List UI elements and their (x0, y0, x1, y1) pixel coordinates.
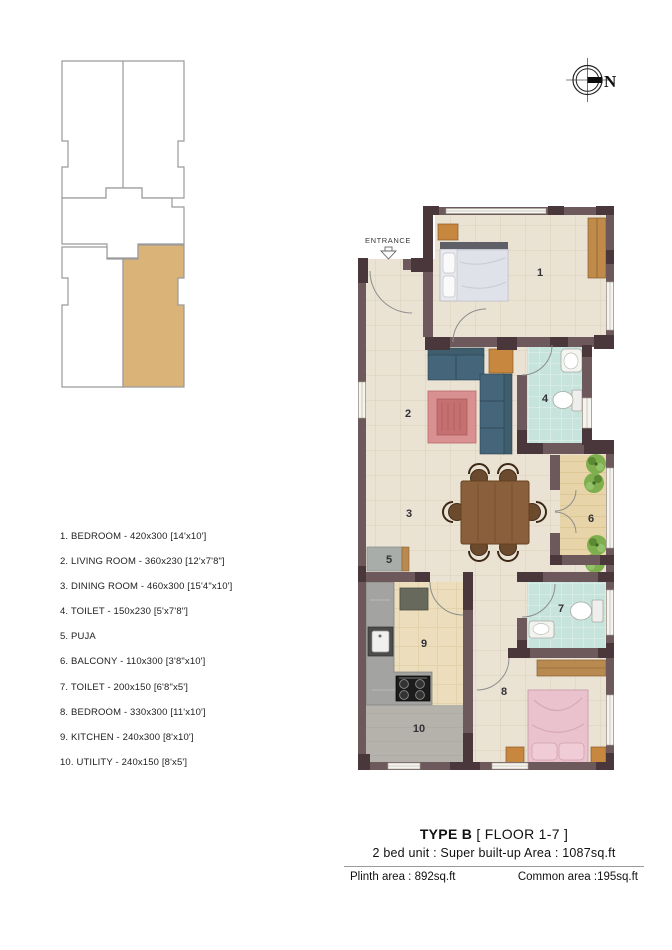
rug (428, 391, 476, 443)
bed-bedroom8 (528, 690, 588, 765)
pillow (532, 743, 557, 760)
legend-item: 1. BEDROOM - 420x300 [14'x10'] (60, 524, 290, 549)
window (446, 209, 546, 214)
room-number-9: 9 (421, 638, 427, 650)
pillow (443, 276, 455, 297)
legend-item: 8. BEDROOM - 330x300 [11'x10'] (60, 700, 290, 725)
room-number-10: 10 (413, 723, 425, 735)
window (583, 398, 592, 428)
floorplan-sheet: N (0, 0, 672, 950)
window (607, 695, 614, 745)
window (607, 590, 614, 635)
window (388, 763, 420, 769)
room-number-7: 7 (558, 603, 564, 615)
toilet-tank (592, 600, 603, 622)
plan-title: TYPE B [ FLOOR 1-7 ] (340, 826, 648, 842)
room-number-6: 6 (588, 513, 594, 525)
plan-type-label: TYPE B (420, 826, 472, 842)
legend-item: 5. PUJA (60, 624, 290, 649)
legend-item: 9. KITCHEN - 240x300 [8'x10'] (60, 725, 290, 750)
pillow (559, 743, 584, 760)
legend-item: 3. DINING ROOM - 460x300 [15'4"x10'] (60, 574, 290, 599)
nightstand-bedroom1 (438, 224, 458, 240)
key-plan-unit-highlight (123, 245, 184, 387)
bed-bedroom1 (440, 242, 508, 301)
title-divider (344, 866, 644, 867)
toilet-tank (572, 390, 582, 411)
fridge (400, 588, 428, 610)
room-number-5: 5 (386, 554, 392, 566)
puja-wood-edge (402, 547, 409, 571)
outside-duct-notch (592, 345, 614, 441)
room-number-1: 1 (537, 267, 543, 279)
legend-item: 6. BALCONY - 110x300 [3'8"x10'] (60, 649, 290, 674)
north-pointer (588, 77, 603, 83)
window (492, 763, 528, 769)
area-details: Plinth area : 892sq.ft Common area :195s… (340, 871, 648, 883)
plan-floor-label: [ FLOOR 1-7 ] (472, 826, 568, 842)
room-number-3: 3 (406, 508, 412, 520)
legend-item: 7. TOILET - 200x150 [6'8"x5'] (60, 675, 290, 700)
nightstand-bedroom8 (591, 747, 606, 763)
north-label: N (604, 72, 617, 91)
toilet-bowl (553, 392, 573, 409)
north-arrow: N (556, 50, 642, 112)
stove (396, 676, 430, 701)
key-plan (0, 0, 240, 420)
legend-item: 4. TOILET - 150x230 [5'x7'8"] (60, 599, 290, 624)
room-number-4: 4 (542, 393, 549, 405)
entrance-label: ENTRANCE (365, 236, 411, 245)
side-table (489, 349, 513, 373)
room-legend: 1. BEDROOM - 420x300 [14'x10'] 2. LIVING… (60, 524, 290, 775)
plant (584, 473, 604, 493)
plant (586, 454, 606, 474)
plinth-area: Plinth area : 892sq.ft (350, 871, 455, 883)
common-area: Common area :195sq.ft (518, 871, 638, 883)
window (607, 468, 614, 548)
window (359, 382, 366, 418)
window (607, 282, 614, 330)
plant (587, 535, 607, 555)
room-number-8: 8 (501, 686, 507, 698)
nightstand-bedroom8 (506, 747, 524, 763)
title-block: TYPE B [ FLOOR 1-7 ] 2 bed unit : Super … (340, 826, 648, 883)
pillow (443, 253, 455, 273)
key-plan-bottom-wing (62, 247, 123, 387)
floor-plan: 1 2 3 4 5 6 7 8 9 10 ENTRANCE (345, 195, 635, 795)
toilet-bowl (571, 602, 592, 620)
legend-item: 10. UTILITY - 240x150 [8'x5'] (60, 750, 290, 775)
room-number-2: 2 (405, 408, 411, 420)
unit-area-line: 2 bed unit : Super built-up Area : 1087s… (340, 846, 648, 860)
legend-item: 2. LIVING ROOM - 360x230 [12'x7'8"] (60, 549, 290, 574)
puja-platform (367, 547, 402, 571)
